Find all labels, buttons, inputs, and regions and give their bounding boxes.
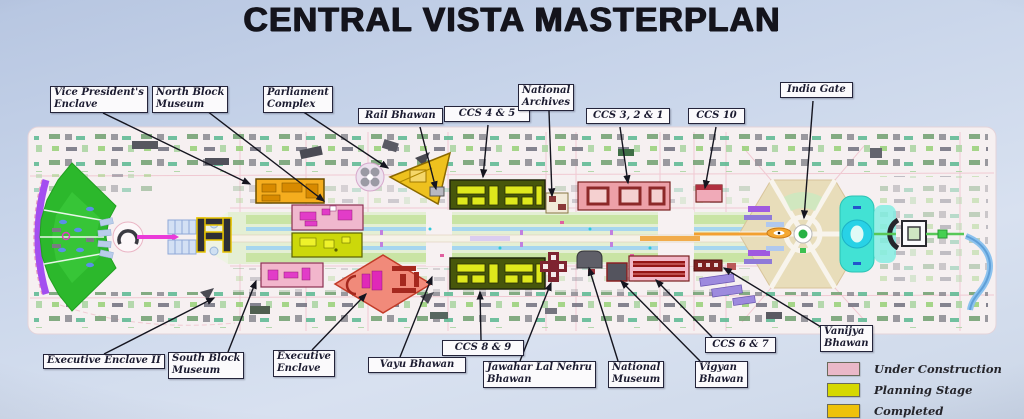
label-north-block-museum: North Block Museum bbox=[152, 86, 228, 113]
label-south-block-museum: South Block Museum bbox=[168, 352, 244, 379]
building-planning-block bbox=[292, 233, 362, 257]
building-north-block-museum bbox=[256, 179, 324, 203]
label-national-archives: National Archives bbox=[518, 84, 574, 111]
legend-swatch-under-construction bbox=[827, 362, 860, 376]
old-parliament-house bbox=[356, 163, 384, 191]
label-vice-presidents-enclave: Vice President's Enclave bbox=[50, 86, 148, 113]
legend-label-under-construction: Under Construction bbox=[874, 362, 1002, 376]
legend-row-completed: Completed bbox=[827, 404, 1002, 418]
building-national-archives bbox=[546, 193, 568, 213]
label-ccs-8-9: CCS 8 & 9 bbox=[442, 340, 524, 356]
label-vayu-bhawan: Vayu Bhawan bbox=[368, 357, 466, 373]
legend-row-planning-stage: Planning Stage bbox=[827, 383, 1002, 397]
slide: CENTRAL VISTA MASTERPLAN bbox=[0, 0, 1024, 419]
label-jln-bhawan: Jawahar Lal Nehru Bhawan bbox=[483, 361, 596, 388]
legend-row-under-construction: Under Construction bbox=[827, 362, 1002, 376]
legend-swatch-planning-stage bbox=[827, 383, 860, 397]
label-vigyan-bhawan: Vigyan Bhawan bbox=[695, 361, 748, 388]
legend-label-planning-stage: Planning Stage bbox=[874, 383, 972, 397]
building-ccs-8-9 bbox=[450, 258, 545, 289]
building-ccs-6-7 bbox=[629, 256, 689, 281]
building-rail-bhawan bbox=[430, 187, 444, 196]
label-ccs-10: CCS 10 bbox=[688, 108, 745, 124]
building-south-block-museum bbox=[261, 263, 323, 287]
legend: Under Construction Planning Stage Comple… bbox=[827, 362, 1002, 419]
label-national-museum: National Museum bbox=[608, 361, 664, 388]
label-vanijya-bhawan: Vanijya Bhawan bbox=[820, 325, 873, 352]
label-executive-enclave-ii: Executive Enclave II bbox=[43, 354, 165, 369]
label-ccs-6-7: CCS 6 & 7 bbox=[705, 337, 776, 353]
building-ccs-4-5 bbox=[450, 180, 545, 209]
label-rail-bhawan: Rail Bhawan bbox=[358, 108, 443, 124]
label-parliament-complex: Parliament Complex bbox=[263, 86, 333, 113]
building-vigyan-bhawan bbox=[607, 263, 627, 281]
label-ccs-3-2-1: CCS 3, 2 & 1 bbox=[586, 108, 670, 124]
building-central-secretariat-north bbox=[292, 205, 363, 230]
legend-label-completed: Completed bbox=[874, 404, 943, 418]
label-india-gate: India Gate bbox=[780, 82, 853, 98]
legend-swatch-completed bbox=[827, 404, 860, 418]
label-executive-enclave: Executive Enclave bbox=[273, 350, 335, 377]
building-ccs-3-2-1 bbox=[578, 182, 670, 210]
building-ccs-10 bbox=[696, 185, 722, 202]
